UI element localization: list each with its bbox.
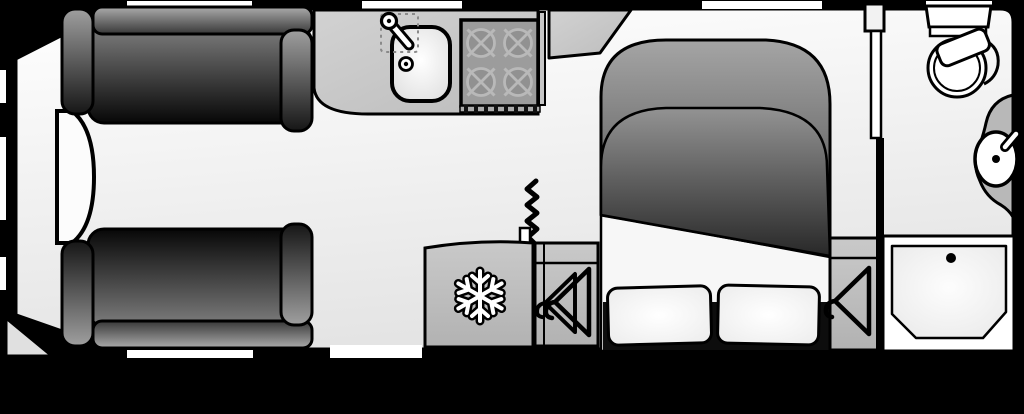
caravan-floorplan: [0, 0, 1024, 414]
window-front-1: [0, 70, 6, 103]
window-top-kitchen: [362, 1, 462, 9]
burner-icon: [505, 30, 532, 57]
sofa-bottom-backrest: [93, 321, 312, 348]
burner-icon: [468, 69, 495, 96]
sofa-bottom-armrest-right: [281, 224, 312, 325]
front-chest-table: [57, 111, 94, 243]
caravan-floorplan-stage: [0, 0, 1024, 414]
sofa-top-backrest: [93, 7, 312, 34]
tap-dot: [387, 19, 391, 23]
window-bottom-lounge: [127, 350, 253, 358]
toilet-cistern: [926, 6, 991, 27]
washroom-door-jamb: [865, 4, 884, 31]
entrance-door-opening: [330, 345, 422, 358]
pillow-right: [717, 285, 819, 345]
worktop-trim: [539, 12, 545, 105]
basin-drain-dot: [992, 155, 1000, 163]
sofa-bottom-armrest-left: [62, 241, 93, 346]
sofa-top-seat: [88, 27, 312, 123]
wardrobe-single: [830, 238, 880, 350]
window-front-2: [0, 137, 6, 220]
burner-icon: [505, 69, 532, 96]
sink-drain-dot: [404, 62, 408, 66]
window-front-3: [0, 257, 6, 290]
sofa-top-armrest-left: [62, 9, 93, 114]
window-top-bedroom: [702, 1, 822, 9]
sofa-bottom-seat: [88, 229, 312, 326]
burner-icon: [468, 30, 495, 57]
shower-drain-dot: [946, 253, 956, 263]
washroom-door-leaf: [871, 31, 881, 138]
sofa-top-armrest-right: [281, 30, 312, 131]
pillow-left: [607, 286, 711, 346]
